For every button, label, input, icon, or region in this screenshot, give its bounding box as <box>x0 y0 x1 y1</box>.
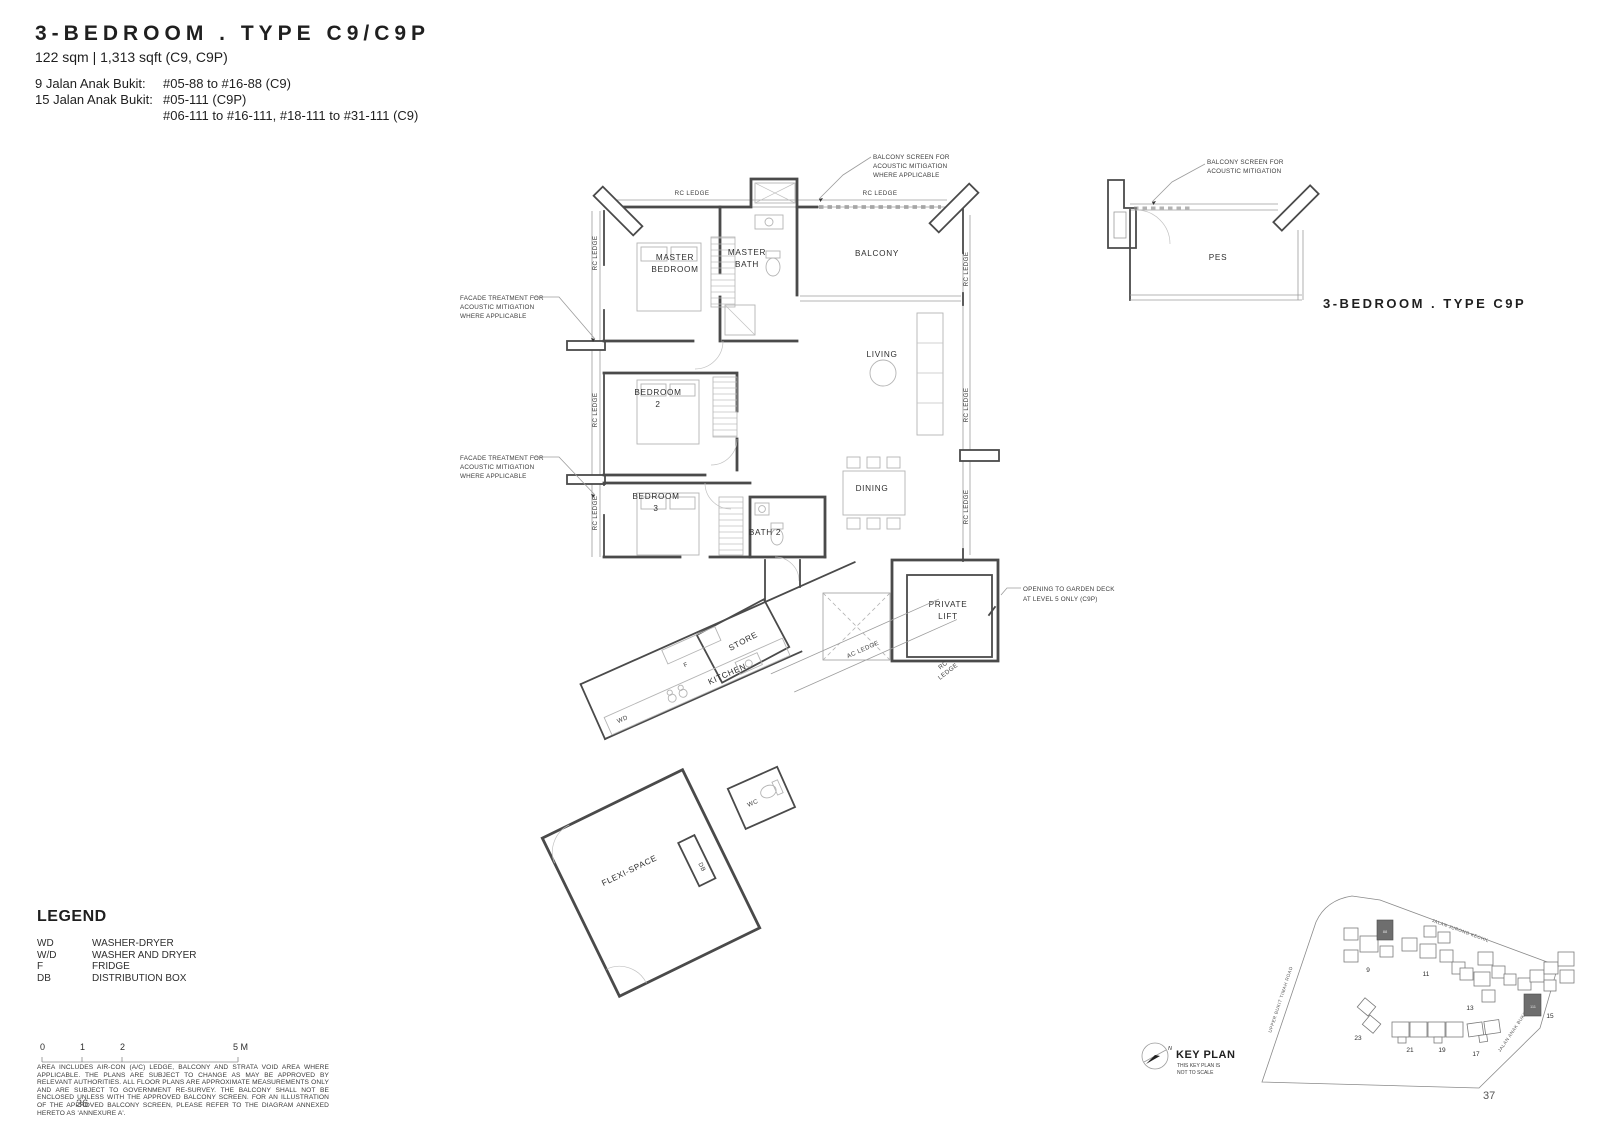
tower-label: 13 <box>1466 1005 1474 1012</box>
room-label: BATH 2 <box>749 528 781 537</box>
legend-desc: WASHER AND DRYER <box>92 950 196 962</box>
tower-cluster-9: 88 <box>1344 920 1393 962</box>
private-lift: PRIVATE LIFT <box>765 560 998 661</box>
tower-label: 23 <box>1354 1035 1362 1042</box>
unit-number: 88 <box>1383 929 1388 934</box>
garden-deck-note: OPENING TO GARDEN DECK AT LEVEL 5 ONLY (… <box>989 586 1115 615</box>
svg-text:AC LEDGE: AC LEDGE <box>846 640 880 660</box>
room-label: PES <box>1209 253 1227 262</box>
address-label <box>35 108 163 124</box>
brochure-page: 3-BEDROOM . TYPE C9/C9P 122 sqm | 1,313 … <box>0 0 1600 1148</box>
room-label: MASTER <box>728 248 766 257</box>
room-label: BATH <box>735 260 759 269</box>
room-label: DINING <box>856 484 889 493</box>
svg-text:BALCONY SCREEN FOR: BALCONY SCREEN FOR <box>1207 159 1284 166</box>
north-label: N <box>1168 1046 1172 1052</box>
svg-text:WHERE APPLICABLE: WHERE APPLICABLE <box>460 473 527 480</box>
pes-type-label: 3-BEDROOM . TYPE C9P <box>1323 296 1526 311</box>
key-plan-note: THIS KEY PLAN IS <box>1177 1063 1221 1069</box>
flexi-space-room: FLEXI-SPACE DB <box>542 770 759 997</box>
key-plan: JALAN JURONG KECHIL UPPER BUKIT TIMAH RO… <box>1130 858 1590 1093</box>
svg-text:F: F <box>683 661 690 669</box>
rc-ledge-label: RC LEDGE <box>675 190 710 197</box>
kitchen-wing: WD F KITCHEN AC LEDGE <box>581 534 957 770</box>
svg-text:ACOUSTIC MITIGATION: ACOUSTIC MITIGATION <box>1207 168 1282 175</box>
key-plan-title-block: N KEY PLAN THIS KEY PLAN IS NOT TO SCALE <box>1142 1043 1235 1076</box>
legend-desc: DISTRIBUTION BOX <box>92 973 186 985</box>
tower-label: 9 <box>1366 967 1370 974</box>
tower-cluster-13 <box>1460 952 1516 1002</box>
room-label: BEDROOM <box>632 492 679 501</box>
bath2-fixtures <box>755 503 783 545</box>
living-furniture <box>870 313 943 435</box>
rc-ledge-label: RC LEDGE <box>592 393 599 428</box>
tower-label: 15 <box>1546 1013 1554 1020</box>
svg-text:LIFT: LIFT <box>938 612 958 621</box>
pes-plan: PES BALCONY SCREEN FOR ACOUSTIC MITIGATI… <box>1070 152 1335 322</box>
tower-cluster-21-19 <box>1392 1022 1463 1043</box>
rc-ledge-label: RC LEDGE <box>963 490 970 525</box>
key-plan-title: KEY PLAN <box>1176 1049 1235 1061</box>
address-label: 9 Jalan Anak Bukit: <box>35 76 163 92</box>
svg-text:ACOUSTIC MITIGATION: ACOUSTIC MITIGATION <box>460 464 535 471</box>
address-value: #05-88 to #16-88 (C9) <box>163 76 291 92</box>
tower-label: 17 <box>1472 1051 1480 1058</box>
scale-tick: 2 <box>120 1042 125 1052</box>
legend-abbr: W/D <box>37 950 92 962</box>
facade-note-1: FACADE TREATMENT FOR ACOUSTIC MITIGATION… <box>460 295 595 342</box>
room-label: MASTER <box>656 253 694 262</box>
room-label: BEDROOM <box>634 388 681 397</box>
tower-cluster-17 <box>1467 1020 1501 1044</box>
header: 3-BEDROOM . TYPE C9/C9P 122 sqm | 1,313 … <box>35 22 430 65</box>
rc-ledge-label: RC LEDGE <box>863 190 898 197</box>
svg-text:ACOUSTIC MITIGATION: ACOUSTIC MITIGATION <box>873 163 948 170</box>
svg-text:WHERE APPLICABLE: WHERE APPLICABLE <box>460 313 527 320</box>
rc-ledge-diagonal: RC LEDGE <box>932 656 959 682</box>
page-number-right: 37 <box>1483 1090 1495 1102</box>
pes-balcony-screen-note: BALCONY SCREEN FOR ACOUSTIC MITIGATION <box>1152 159 1284 205</box>
legend-heading: LEGEND <box>37 908 196 926</box>
svg-text:WHERE APPLICABLE: WHERE APPLICABLE <box>873 172 940 179</box>
scale-tick: 0 <box>40 1042 45 1052</box>
rc-ledge-label: RC LEDGE <box>592 236 599 271</box>
dining-furniture <box>843 457 905 529</box>
rc-ledge-label: RC LEDGE <box>963 388 970 423</box>
svg-text:STORE: STORE <box>727 630 759 653</box>
page-title: 3-BEDROOM . TYPE C9/C9P <box>35 22 430 46</box>
svg-text:AT LEVEL 5 ONLY (C9P): AT LEVEL 5 ONLY (C9P) <box>1023 596 1098 603</box>
unit-number: 111 <box>1530 1004 1537 1009</box>
rc-ledge-label: RC LEDGE <box>592 496 599 531</box>
address-label: 15 Jalan Anak Bukit: <box>35 92 163 108</box>
svg-text:DB: DB <box>696 861 706 873</box>
svg-text:FACADE TREATMENT FOR: FACADE TREATMENT FOR <box>460 455 544 462</box>
tower-cluster-23 <box>1351 998 1387 1033</box>
address-value: #05-111 (C9P) <box>163 92 246 108</box>
room-label: BALCONY <box>855 249 899 258</box>
legend-desc: WASHER-DRYER <box>92 938 174 950</box>
room-label: 3 <box>653 504 658 513</box>
legend-abbr: F <box>37 961 92 973</box>
legend: LEGEND WDWASHER-DRYER W/DWASHER AND DRYE… <box>37 908 196 984</box>
svg-text:BALCONY SCREEN FOR: BALCONY SCREEN FOR <box>873 154 950 161</box>
room-label: LIVING <box>866 350 897 359</box>
svg-text:FLEXI-SPACE: FLEXI-SPACE <box>600 853 658 888</box>
main-floor-plan: PRIVATE LIFT STORE WD F KITCHEN <box>455 145 1080 970</box>
bedroom3-furniture <box>637 493 743 555</box>
room-label: BEDROOM <box>651 265 698 274</box>
exterior-walls <box>567 179 999 561</box>
key-plan-note: NOT TO SCALE <box>1177 1070 1214 1076</box>
pes-walls <box>1108 180 1319 300</box>
svg-text:WD: WD <box>616 714 629 725</box>
scale-tick: 1 <box>80 1042 85 1052</box>
tower-label: 11 <box>1423 971 1430 978</box>
page-number-left: 36 <box>76 1098 88 1110</box>
svg-text:OPENING TO GARDEN DECK: OPENING TO GARDEN DECK <box>1023 586 1115 593</box>
svg-text:ACOUSTIC MITIGATION: ACOUSTIC MITIGATION <box>460 304 535 311</box>
address-block: 9 Jalan Anak Bukit:#05-88 to #16-88 (C9)… <box>35 76 418 124</box>
room-label: 2 <box>655 400 660 409</box>
tower-cluster-11 <box>1402 926 1465 974</box>
svg-text:WC: WC <box>746 798 759 809</box>
address-value: #06-111 to #16-111, #18-111 to #31-111 (… <box>163 108 418 124</box>
master-bed <box>637 237 735 311</box>
legend-abbr: DB <box>37 973 92 985</box>
scale-tick: 5 M <box>233 1042 248 1052</box>
unit-area: 122 sqm | 1,313 sqft (C9, C9P) <box>35 49 430 65</box>
site-boundary <box>1262 896 1558 1088</box>
tower-label: 19 <box>1438 1047 1446 1054</box>
rc-ledge-label: RC LEDGE <box>963 252 970 287</box>
svg-text:FACADE TREATMENT FOR: FACADE TREATMENT FOR <box>460 295 544 302</box>
legend-desc: FRIDGE <box>92 961 130 973</box>
tower-label: 21 <box>1406 1047 1414 1054</box>
wc-room: WC <box>728 767 795 829</box>
legend-abbr: WD <box>37 938 92 950</box>
